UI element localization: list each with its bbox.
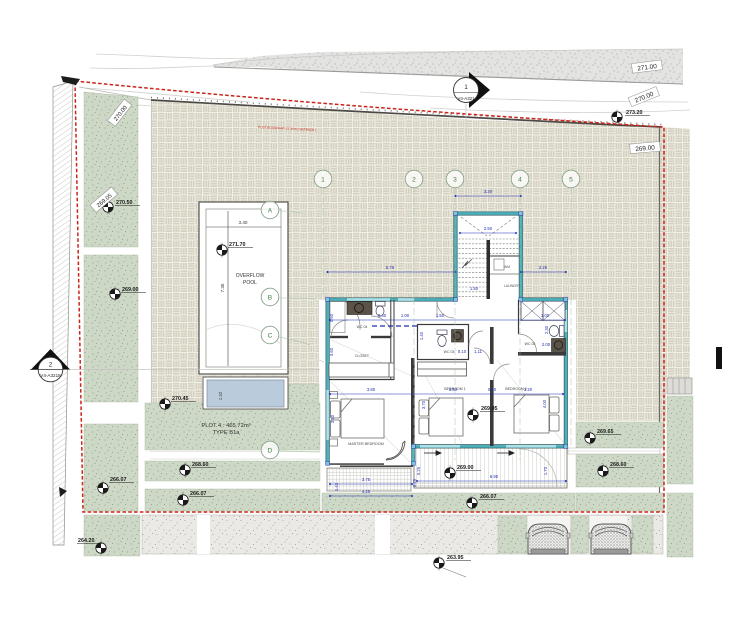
svg-text:1.50: 1.50 (470, 286, 479, 291)
svg-text:269.00: 269.00 (122, 287, 139, 293)
svg-text:LAUNDRY: LAUNDRY (504, 284, 521, 288)
svg-text:0.40: 0.40 (378, 313, 387, 318)
svg-text:V4-A3218: V4-A3218 (40, 373, 61, 378)
svg-text:2: 2 (412, 176, 416, 183)
svg-text:4.00: 4.00 (542, 399, 547, 408)
svg-text:5: 5 (569, 176, 573, 183)
svg-text:5.75: 5.75 (386, 265, 395, 270)
svg-text:1.40: 1.40 (419, 331, 424, 340)
svg-text:266.07: 266.07 (480, 494, 497, 500)
svg-text:7.35: 7.35 (220, 283, 225, 292)
svg-text:3.75: 3.75 (362, 477, 371, 482)
svg-text:2.25: 2.25 (539, 265, 548, 270)
svg-text:TYPE B1a: TYPE B1a (212, 430, 240, 436)
svg-text:264.20: 264.20 (78, 538, 95, 544)
svg-text:0.25: 0.25 (412, 478, 417, 487)
svg-text:6.95: 6.95 (490, 474, 499, 479)
svg-text:269.00: 269.00 (457, 465, 474, 471)
svg-text:1.11: 1.11 (474, 349, 483, 354)
svg-text:3: 3 (453, 176, 457, 183)
svg-text:266.07: 266.07 (190, 491, 207, 497)
svg-text:269.05: 269.05 (481, 406, 498, 412)
svg-text:4: 4 (518, 176, 522, 183)
svg-text:3.50: 3.50 (449, 387, 458, 392)
svg-text:269.65: 269.65 (597, 429, 614, 435)
svg-text:268.60: 268.60 (610, 462, 627, 468)
svg-text:0.10: 0.10 (488, 387, 497, 392)
svg-text:3.70: 3.70 (421, 400, 426, 409)
svg-text:0.10: 0.10 (458, 349, 467, 354)
svg-text:D: D (268, 447, 273, 454)
svg-text:1: 1 (321, 176, 325, 183)
svg-text:3.60: 3.60 (329, 347, 334, 356)
svg-text:3.80: 3.80 (367, 387, 376, 392)
svg-text:3.40: 3.40 (239, 220, 248, 225)
svg-text:POOL: POOL (243, 280, 257, 286)
svg-text:1.50: 1.50 (436, 313, 445, 318)
svg-text:WM: WM (504, 265, 510, 269)
svg-text:268.60: 268.60 (192, 462, 209, 468)
svg-text:2.00: 2.00 (542, 342, 551, 347)
svg-text:A: A (268, 207, 273, 214)
svg-text:2.50: 2.50 (484, 226, 493, 231)
svg-text:3.20: 3.20 (484, 189, 493, 194)
svg-text:3.20: 3.20 (524, 387, 533, 392)
svg-text:271.70: 271.70 (229, 242, 246, 248)
svg-text:270.50: 270.50 (116, 200, 133, 206)
svg-text:263.95: 263.95 (447, 555, 464, 561)
svg-text:B: B (268, 294, 273, 301)
svg-text:2.30: 2.30 (544, 325, 549, 334)
svg-text:0.25: 0.25 (416, 466, 421, 475)
svg-text:273.20: 273.20 (626, 110, 643, 116)
svg-text:3.50: 3.50 (330, 414, 335, 423)
svg-text:266.07: 266.07 (110, 477, 127, 483)
svg-text:0.60: 0.60 (329, 313, 334, 322)
svg-text:V4-A321: V4-A321 (457, 96, 475, 101)
svg-text:1.70: 1.70 (543, 466, 548, 475)
svg-text:1.00: 1.00 (401, 313, 410, 318)
svg-text:1.00: 1.00 (541, 313, 550, 318)
svg-text:270.45: 270.45 (172, 396, 189, 402)
svg-text:C: C (268, 332, 273, 339)
svg-text:4.25: 4.25 (362, 489, 371, 494)
svg-text:PLOT 4 : 465.72m²: PLOT 4 : 465.72m² (201, 423, 250, 429)
svg-text:1.43: 1.43 (334, 482, 339, 491)
svg-text:WC 04: WC 04 (357, 325, 368, 329)
svg-text:MASTER BEDROOM: MASTER BEDROOM (348, 442, 383, 446)
svg-text:WC 02: WC 02 (525, 342, 536, 346)
svg-text:CLOSET: CLOSET (355, 354, 370, 358)
svg-text:WC 03: WC 03 (444, 350, 455, 354)
svg-text:OVERFLOW: OVERFLOW (236, 273, 265, 279)
svg-text:1.32: 1.32 (218, 391, 223, 400)
